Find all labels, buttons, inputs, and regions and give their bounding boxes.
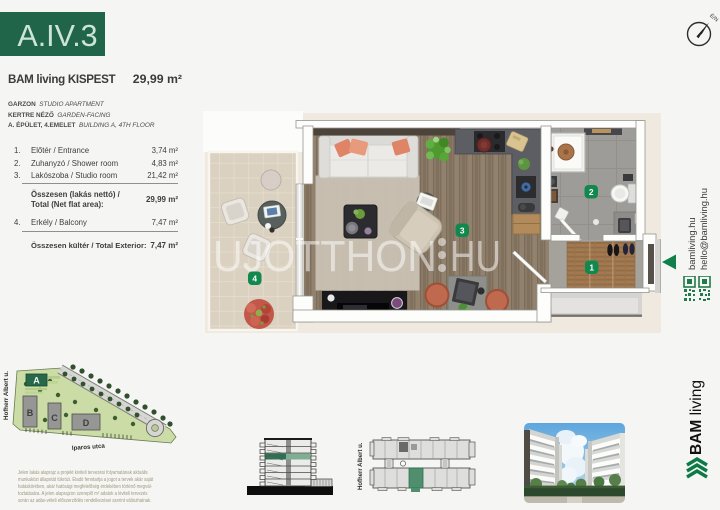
svg-text:Hofherr Albert u.: Hofherr Albert u. [358,442,364,490]
svg-text:D: D [83,418,90,428]
svg-text:É/N: É/N [708,12,719,23]
svg-text:3: 3 [460,226,465,236]
svg-text:4: 4 [252,274,257,284]
svg-text:B: B [27,408,34,418]
svg-text:1: 1 [589,263,594,273]
svg-text:C: C [51,413,58,423]
svg-text:Hofherr Albert u.: Hofherr Albert u. [3,371,10,420]
svg-text:2: 2 [589,187,594,197]
svg-text:Iparos utca: Iparos utca [72,443,106,452]
svg-text:A: A [33,376,40,386]
svg-text:HU: HU [450,232,501,281]
svg-text:UJOTTHON: UJOTTHON [213,232,437,281]
